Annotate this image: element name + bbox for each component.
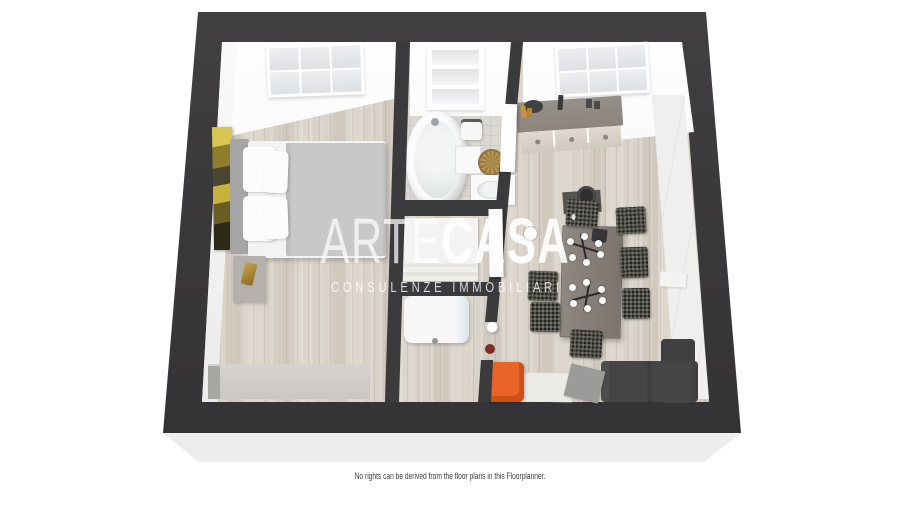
bathtub-faucet [431, 118, 439, 126]
candle [599, 297, 606, 304]
candle [570, 300, 577, 307]
bathroom-door [500, 104, 517, 172]
candle [569, 284, 576, 291]
bathtub-basin [414, 121, 460, 198]
dining-chair [615, 206, 646, 235]
sofa [601, 361, 698, 402]
dining-chair [622, 288, 651, 319]
bottle [527, 108, 532, 118]
candle [581, 233, 588, 240]
candle [583, 279, 590, 286]
watermark-brand-bold: CASA [441, 209, 570, 273]
counter-jar [594, 101, 600, 109]
bath-scale [461, 119, 482, 140]
kitchen-drawer [588, 126, 621, 149]
dining-chair [619, 247, 648, 279]
dining-chair [569, 329, 602, 359]
watermark-tagline: CONSULENZE IMMOBILIARI [331, 279, 563, 296]
vase [485, 344, 495, 354]
dining-chair [530, 302, 561, 333]
drawer-knob [535, 139, 540, 144]
dresser-end [208, 366, 220, 399]
kitchen-drawer [521, 130, 554, 153]
bedroom-window [266, 42, 365, 97]
candle [584, 305, 591, 312]
drawer-knob [602, 135, 607, 140]
candle-decor [568, 279, 608, 313]
watermark-brand-light: ARTE [321, 209, 442, 273]
drawer-knob [568, 137, 573, 142]
kitchen-window [555, 42, 651, 98]
candle [597, 251, 604, 258]
kitchen-drawer [554, 128, 587, 151]
bed-pillow [263, 197, 288, 240]
kitchen-faucet [557, 95, 563, 110]
bed-pillow [263, 151, 288, 194]
candle [595, 240, 602, 247]
watermark-logo: ARTECASA [321, 209, 576, 273]
bench [660, 271, 687, 287]
candle [598, 286, 605, 293]
floorplan-3d-render: ARTECASA CONSULENZE IMMOBILIARI No right… [0, 0, 900, 506]
washing-machine-knob [432, 338, 438, 344]
counter-jar [586, 99, 592, 108]
floor-lamp [486, 321, 498, 333]
registered-mark-icon [571, 214, 575, 220]
washing-machine [404, 296, 469, 343]
disclaimer-text: No rights can be derived from the floor … [355, 471, 546, 482]
bottle [520, 106, 526, 118]
towel-shelf [427, 44, 484, 110]
candle [583, 259, 590, 266]
dresser [208, 364, 370, 399]
